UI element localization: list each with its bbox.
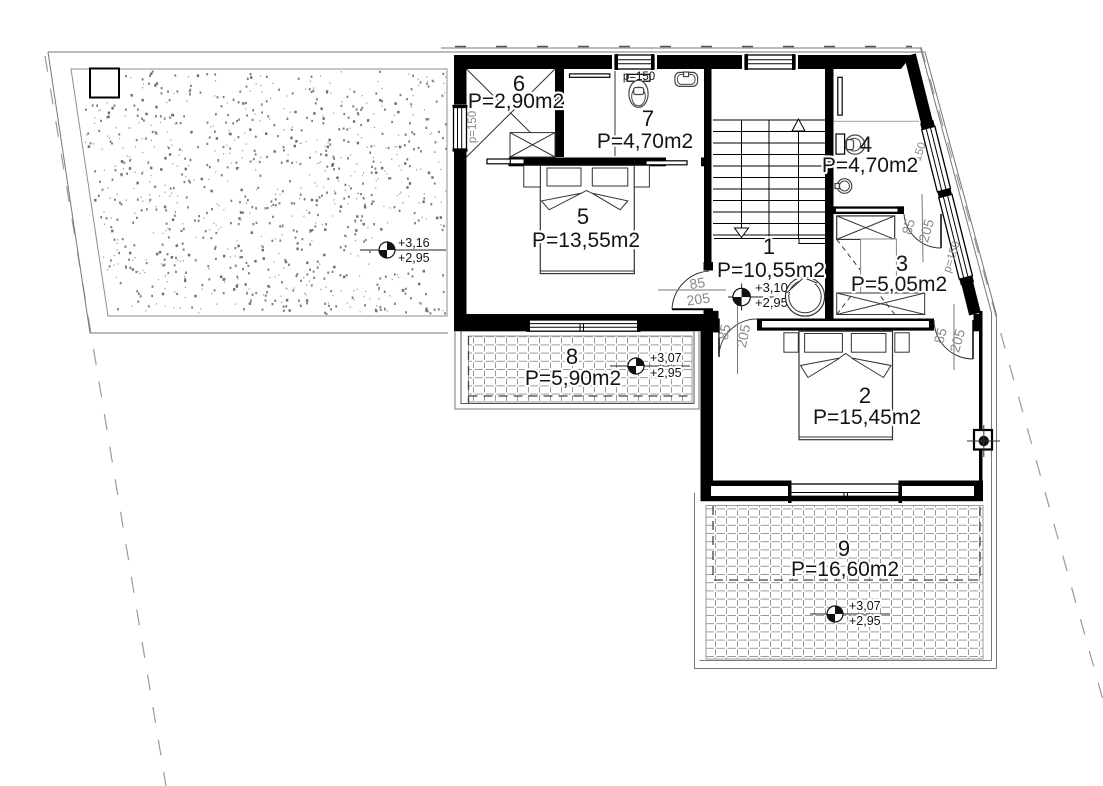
- svg-text:1: 1: [763, 234, 775, 259]
- svg-text:8: 8: [566, 344, 578, 369]
- svg-text:+3,07: +3,07: [849, 599, 881, 613]
- svg-text:p=150: p=150: [623, 71, 655, 83]
- svg-text:P=10,55m2: P=10,55m2: [717, 259, 825, 282]
- svg-text:+2,95: +2,95: [398, 251, 430, 265]
- svg-text:P=2,90m2: P=2,90m2: [468, 90, 564, 113]
- svg-text:p=150: p=150: [467, 111, 479, 143]
- svg-text:+2,95: +2,95: [650, 366, 682, 380]
- svg-text:+3,16: +3,16: [398, 236, 430, 250]
- svg-text:2: 2: [859, 383, 871, 408]
- svg-text:5: 5: [577, 204, 589, 229]
- svg-text:P=4,70m2: P=4,70m2: [597, 130, 693, 153]
- svg-text:+3,10: +3,10: [755, 280, 788, 295]
- svg-text:205: 205: [686, 289, 712, 308]
- svg-text:P=5,05m2: P=5,05m2: [851, 273, 947, 296]
- svg-text:+3,07: +3,07: [650, 351, 682, 365]
- svg-text:P=13,55m2: P=13,55m2: [532, 229, 640, 252]
- svg-text:P=5,90m2: P=5,90m2: [525, 367, 621, 390]
- svg-text:7: 7: [642, 106, 654, 131]
- svg-text:P=15,45m2: P=15,45m2: [813, 406, 921, 429]
- svg-text:P=4,70m2: P=4,70m2: [822, 154, 918, 177]
- svg-text:+2,95: +2,95: [849, 614, 881, 628]
- svg-text:+2,95: +2,95: [755, 295, 788, 310]
- svg-text:P=16,60m2: P=16,60m2: [791, 558, 899, 581]
